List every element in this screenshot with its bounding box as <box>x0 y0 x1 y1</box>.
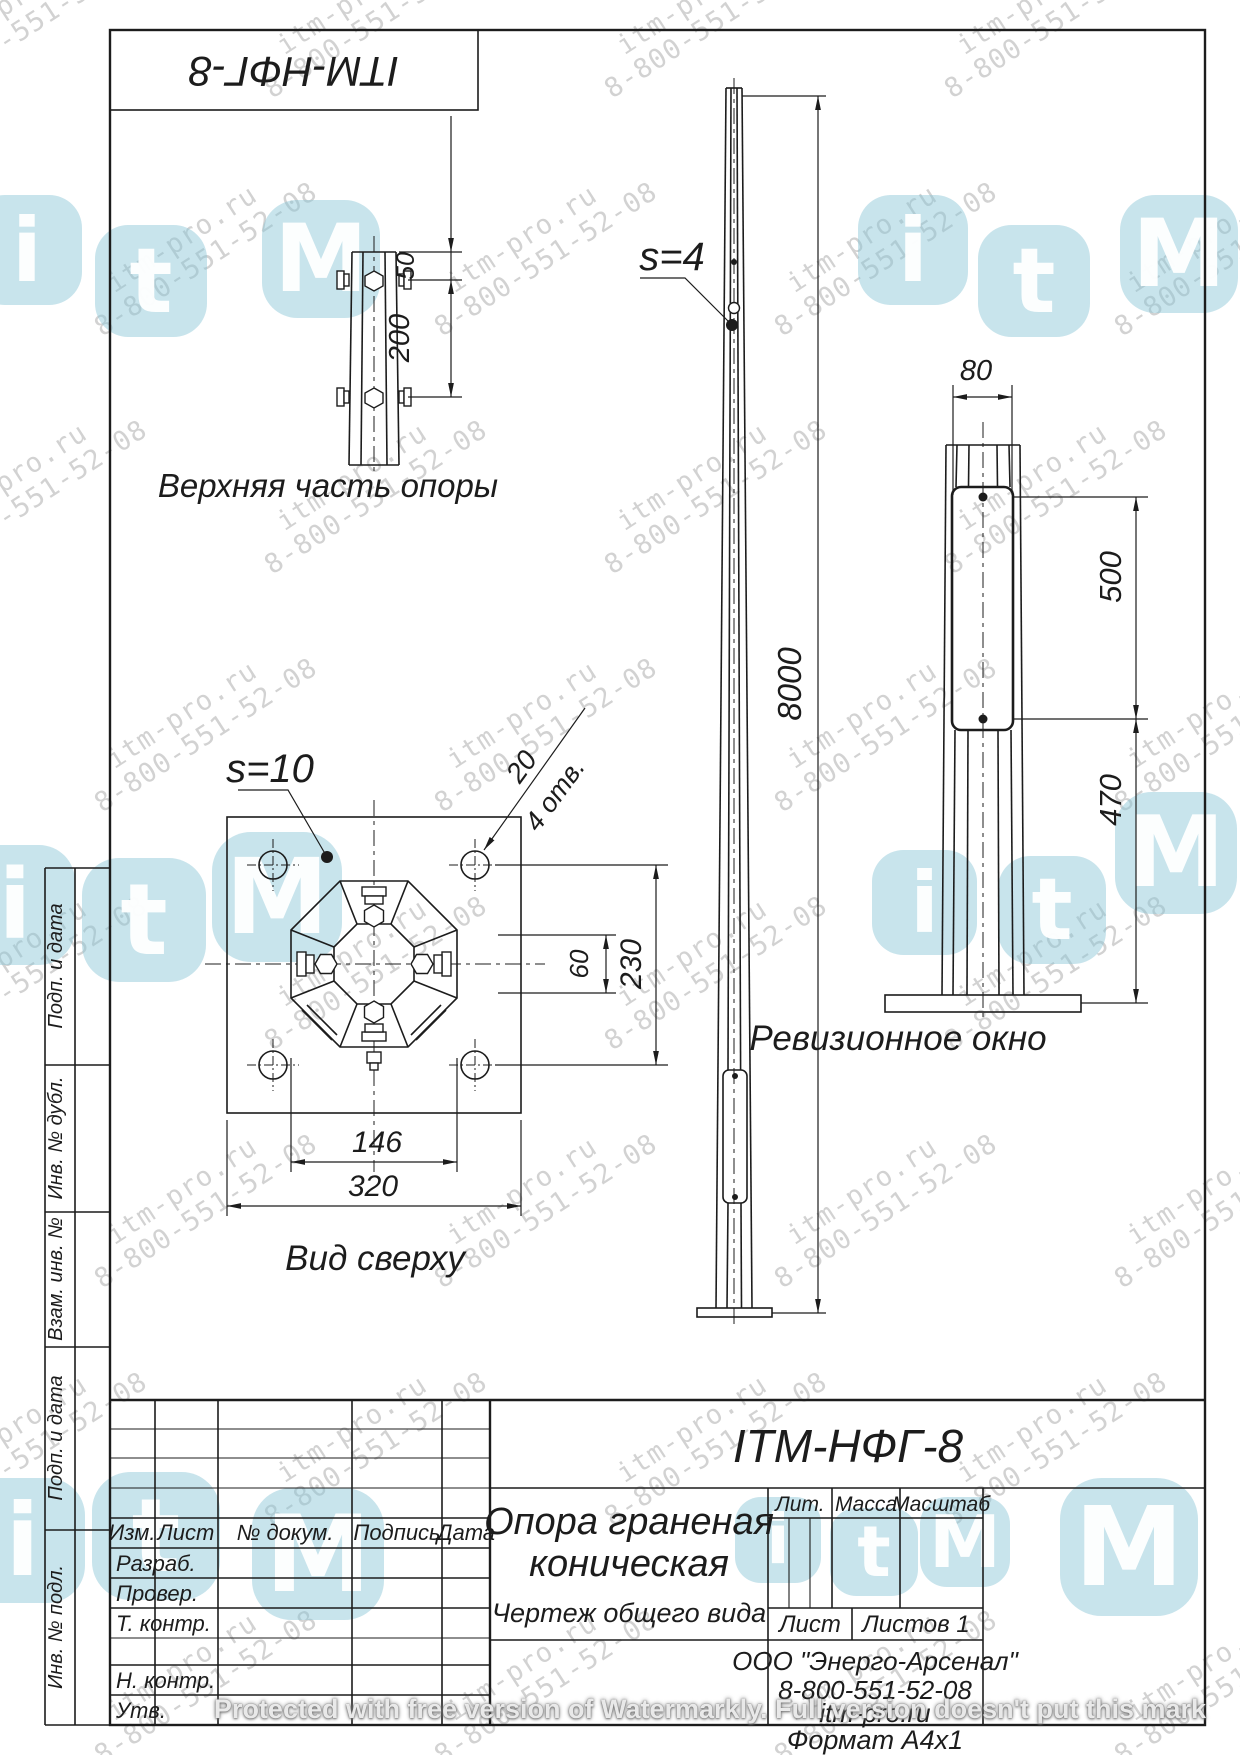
side-label-podp-data-2: Подп. и дата <box>45 1375 67 1500</box>
top-view-label: Вид сверху <box>285 1239 467 1278</box>
row-razrab: Разраб. <box>116 1551 196 1576</box>
side-label-vzam-inv: Взам. инв. № <box>45 1217 67 1341</box>
dim-8000-text: 8000 <box>771 647 808 721</box>
dim-500-470: 500 470 <box>1013 497 1148 1003</box>
part-name-line2: коническая <box>529 1543 729 1585</box>
s10-text: s=10 <box>226 747 314 791</box>
dim-50-200: 50 200 <box>384 116 462 397</box>
view-front-pole: s=4 8000 <box>639 78 826 1325</box>
octagon-bolt-east <box>411 952 451 976</box>
view-top: s=10 20 4 отв. 60 230 <box>205 708 668 1278</box>
header-lit: Лит. <box>773 1493 824 1516</box>
view-upper-detail: 50 200 Верхняя часть опоры <box>158 116 498 504</box>
col-izm: Изм. <box>109 1520 156 1545</box>
dim-8000: 8000 <box>742 96 826 1313</box>
s10-callout: s=10 <box>226 747 333 863</box>
row-utv: Утв. <box>115 1698 166 1723</box>
doc-number: ITM-НФГ-8 <box>733 1420 964 1472</box>
cell-list: Лист <box>777 1611 841 1638</box>
dim-80-text: 80 <box>960 355 992 387</box>
col-list: Лист <box>156 1520 215 1545</box>
upper-detail-label: Верхняя часть опоры <box>158 467 498 504</box>
octagon-bolt-west <box>297 952 337 976</box>
octagon-bolt-south <box>362 1001 386 1070</box>
doc-type: Чертеж общего вида <box>492 1598 766 1628</box>
top-stamp-title: ITM-НФГ-8 <box>188 48 399 95</box>
side-label-inv-dubl: Инв. № дубл. <box>45 1077 67 1200</box>
view-window-detail: 80 500 470 Ревизионное окно <box>749 355 1148 1058</box>
drawing-canvas: Подп. и дата Инв. № дубл. Взам. инв. № П… <box>0 0 1240 1755</box>
pole-revision-window <box>723 1070 747 1203</box>
dim-500-text: 500 <box>1093 551 1128 603</box>
octagon-bolt-north <box>362 887 386 927</box>
col-ndokum: № докум. <box>237 1520 334 1545</box>
col-podpis: Подпись <box>353 1520 440 1545</box>
row-nkontr: Н. контр. <box>116 1668 215 1693</box>
window-detail-label: Ревизионное окно <box>749 1019 1046 1058</box>
dim-60-text: 60 <box>564 949 594 978</box>
company-name: ООО "Энерго-Арсенал" <box>732 1646 1019 1676</box>
s4-callout: s=4 <box>639 235 738 331</box>
row-prover: Провер. <box>116 1581 198 1606</box>
dim-20-text: 20 <box>499 744 543 789</box>
header-masshtab: Масштаб <box>892 1493 991 1516</box>
drawing-frame: Подп. и дата Инв. № дубл. Взам. инв. № П… <box>45 30 1205 1725</box>
s4-text: s=4 <box>639 235 705 279</box>
dim-320-text: 320 <box>348 1170 398 1203</box>
bolt-row-lower <box>337 388 411 408</box>
pole-top-hole-1 <box>731 259 737 265</box>
hole-callout: 20 4 отв. <box>484 708 591 850</box>
part-name-line1: Опора граненая <box>484 1501 774 1543</box>
pole-top-hole-2 <box>729 303 740 314</box>
side-label-podp-data-1: Подп. и дата <box>45 903 67 1028</box>
header-massa: Масса <box>835 1493 897 1516</box>
pole-octagon-section <box>291 881 457 1070</box>
dim-50-text: 50 <box>392 252 420 280</box>
side-label-inv-podl: Инв. № подл. <box>45 1565 67 1689</box>
format-label: Формат А4х1 <box>787 1725 963 1755</box>
dim-470-text: 470 <box>1093 774 1128 826</box>
row-tkontr: Т. контр. <box>116 1611 211 1636</box>
drawing-sheet: itm-pro.ru8-800-551-52-08itm-pro.ru8-800… <box>0 0 1240 1755</box>
cell-listov: Листов 1 <box>860 1611 969 1638</box>
protected-watermark: Protected with free version of Watermark… <box>190 1694 1230 1725</box>
dim-146-text: 146 <box>352 1126 402 1159</box>
dim-200-text: 200 <box>384 314 416 363</box>
dim-230-text: 230 <box>615 939 648 990</box>
